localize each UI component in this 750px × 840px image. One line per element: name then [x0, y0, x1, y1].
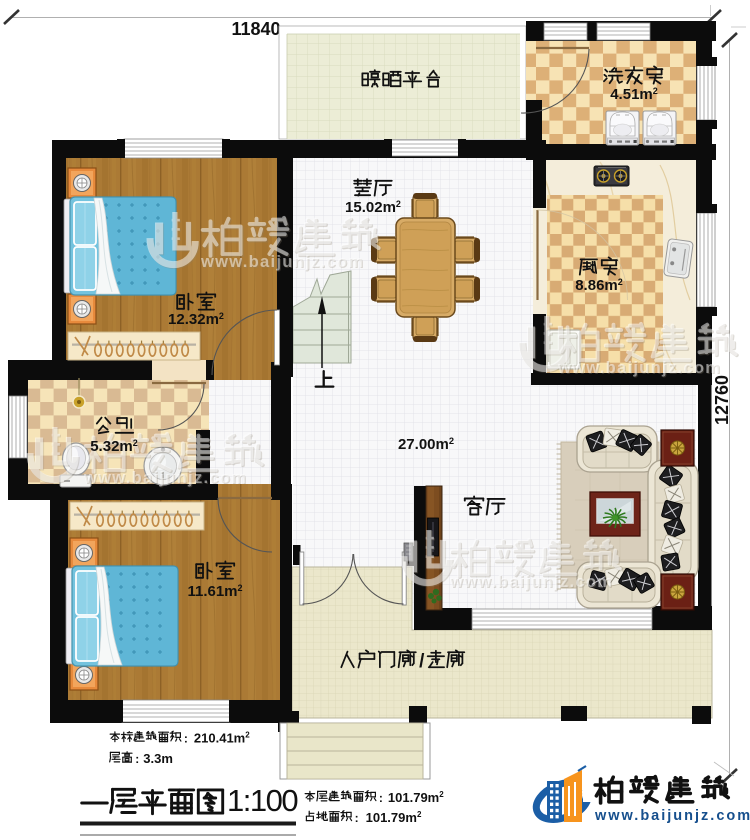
- svg-text:101.79m2: 101.79m2: [366, 810, 422, 825]
- svg-text:101.79m2: 101.79m2: [388, 790, 444, 805]
- svg-text:11.61m2: 11.61m2: [187, 583, 242, 600]
- svg-text:15.02m2: 15.02m2: [345, 199, 401, 216]
- svg-text::: :: [355, 811, 359, 825]
- svg-text:www.baijunjz.com: www.baijunjz.com: [557, 359, 721, 377]
- svg-text:8.86m2: 8.86m2: [575, 277, 623, 294]
- svg-text:27.00m2: 27.00m2: [398, 436, 454, 453]
- svg-text:www.baijunjz.com: www.baijunjz.com: [200, 253, 364, 271]
- svg-text::: :: [184, 732, 188, 746]
- svg-text::: :: [135, 752, 139, 766]
- svg-text::: :: [379, 791, 383, 805]
- svg-text:4.51m2: 4.51m2: [610, 86, 658, 103]
- svg-text:210.41m2: 210.41m2: [194, 731, 250, 746]
- svg-text:www.baijunjz.com: www.baijunjz.com: [449, 573, 613, 591]
- svg-text:3.3m: 3.3m: [143, 751, 173, 766]
- svg-text:/: /: [419, 651, 425, 672]
- svg-text:5.32m2: 5.32m2: [90, 438, 138, 455]
- svg-text:12760: 12760: [712, 375, 732, 425]
- svg-text:11840: 11840: [231, 19, 280, 39]
- svg-text:12.32m2: 12.32m2: [168, 311, 224, 328]
- svg-text:www.baijunjz.com: www.baijunjz.com: [594, 808, 750, 824]
- svg-text:www.baijunjz.com: www.baijunjz.com: [83, 469, 247, 487]
- svg-text:1:100: 1:100: [227, 783, 298, 818]
